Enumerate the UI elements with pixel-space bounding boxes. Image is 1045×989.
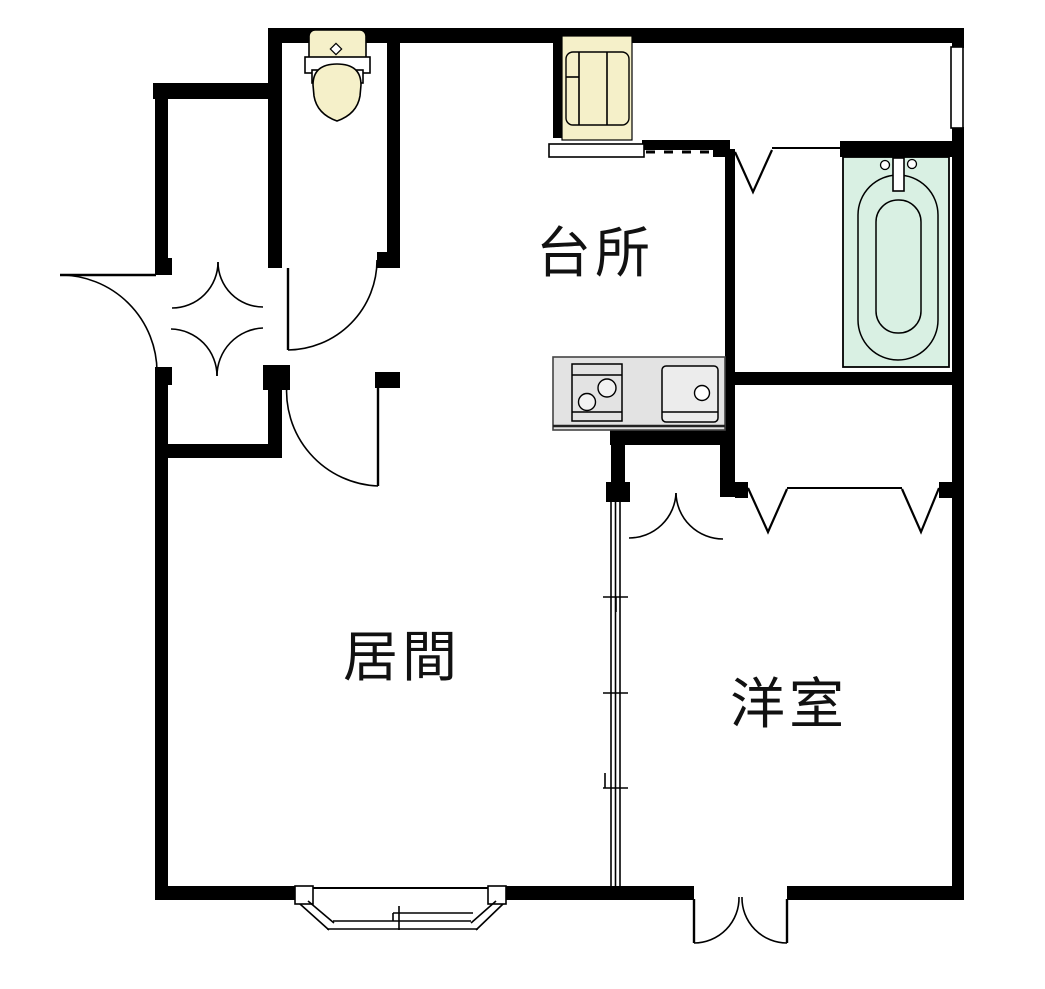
closet-top-wall — [153, 83, 270, 99]
floor-plan: 台所 居間 洋室 — [0, 0, 1045, 989]
western-closet-v-door-a — [748, 488, 787, 532]
wc-right-jamb — [377, 252, 400, 268]
room-label-western: 洋室 — [730, 673, 848, 735]
washing-machine-space-icon — [549, 36, 644, 157]
wall-left-upper — [155, 83, 168, 275]
wall-bottom-left — [155, 886, 296, 900]
room-label-living: 居間 — [343, 626, 461, 688]
western-closet-v-door-b — [902, 488, 939, 532]
toilet-icon — [305, 30, 370, 121]
entrance-door — [60, 275, 157, 372]
sliding-partition — [603, 500, 628, 886]
wc-left-wall — [268, 28, 282, 268]
sink-icon — [662, 366, 718, 422]
wc-door-arc — [288, 260, 377, 350]
tub-faucet — [893, 158, 904, 191]
bath-floor-divider-wall — [725, 372, 955, 385]
hall-living-door — [287, 382, 378, 486]
bathtub-icon — [843, 157, 949, 367]
wall-right-lower — [952, 127, 964, 900]
floor-plan-svg: 台所 居間 洋室 — [0, 0, 1045, 989]
wall-bottom-right — [787, 886, 964, 900]
bath-v-door — [735, 150, 772, 192]
washer-step — [549, 144, 644, 157]
wall-right-upper — [952, 28, 964, 48]
washroom-left-wall — [725, 149, 735, 385]
burner-small — [579, 394, 596, 411]
western-top-jamb-a — [735, 482, 748, 498]
closet-double-doors — [172, 262, 263, 308]
burner-large — [598, 379, 616, 397]
kitchen-bottom-wall — [610, 430, 727, 445]
wc-door — [288, 260, 377, 350]
toilet-bowl — [313, 64, 361, 121]
western-closet-double-doors — [629, 493, 723, 539]
kitchen-counter — [553, 357, 725, 430]
hall-door-jamb — [375, 372, 400, 388]
room-label-kitchen: 台所 — [536, 222, 654, 284]
entrance-jamb-top — [155, 258, 172, 275]
window — [951, 47, 963, 128]
tub-knob-right — [908, 160, 917, 169]
hall-living-door-arc — [287, 382, 378, 486]
bay-window — [295, 886, 506, 930]
storage-bottom-wall — [157, 444, 282, 458]
partition-top-jamb — [606, 482, 630, 502]
western-top-jamb-b — [939, 482, 963, 498]
bath-top-wall — [840, 141, 952, 157]
wc-right-wall — [387, 28, 400, 268]
wall-bottom-mid — [505, 886, 694, 900]
tub-knob-left — [881, 161, 890, 170]
bay-window-jamb-right — [488, 886, 506, 904]
bay-window-jamb-left — [295, 886, 313, 904]
storage-double-doors — [171, 328, 263, 376]
entrance-door-arc — [60, 275, 157, 372]
western-bottom-double-door — [694, 897, 787, 943]
sink-drain — [695, 386, 710, 401]
